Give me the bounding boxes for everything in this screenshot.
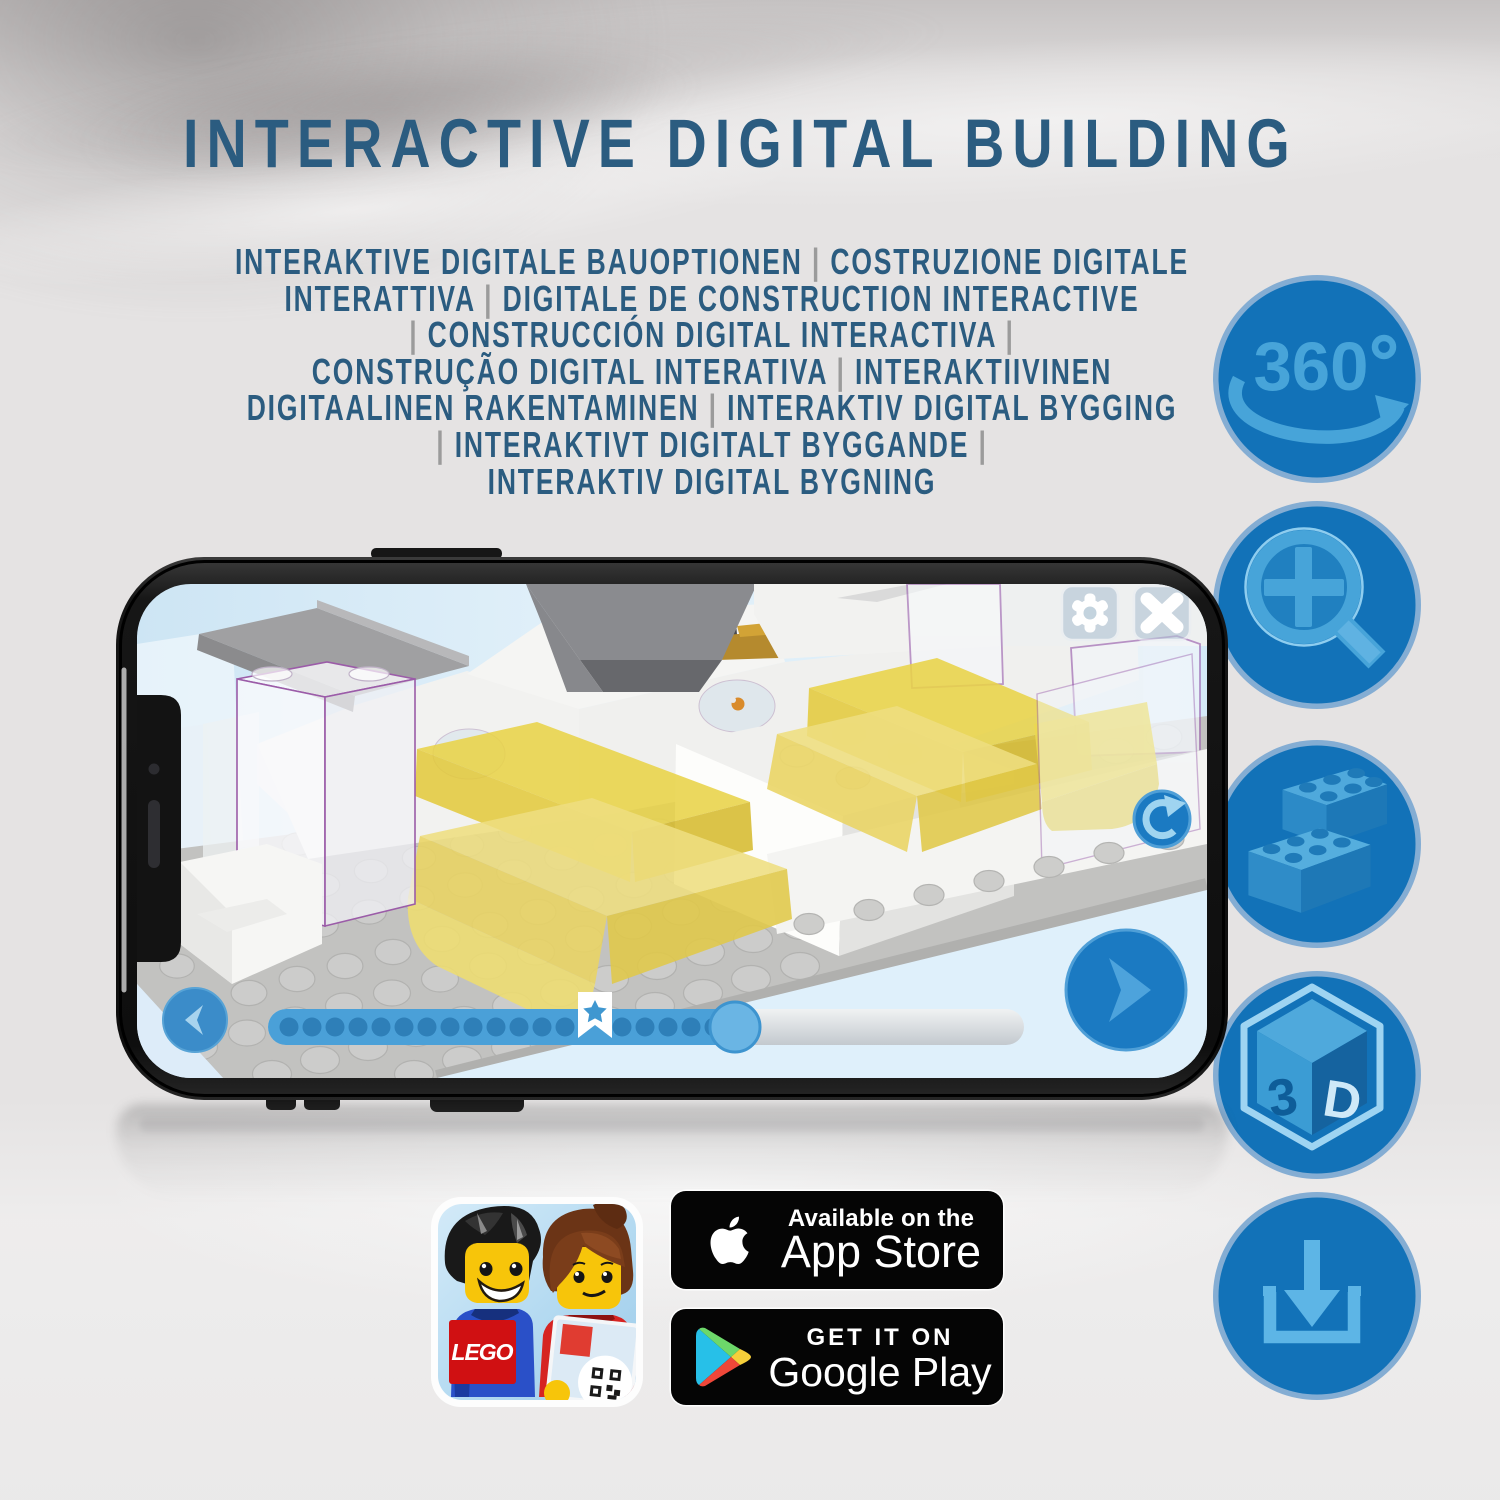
svg-text:LEGO: LEGO bbox=[451, 1339, 513, 1365]
svg-text:360: 360 bbox=[1253, 328, 1368, 405]
